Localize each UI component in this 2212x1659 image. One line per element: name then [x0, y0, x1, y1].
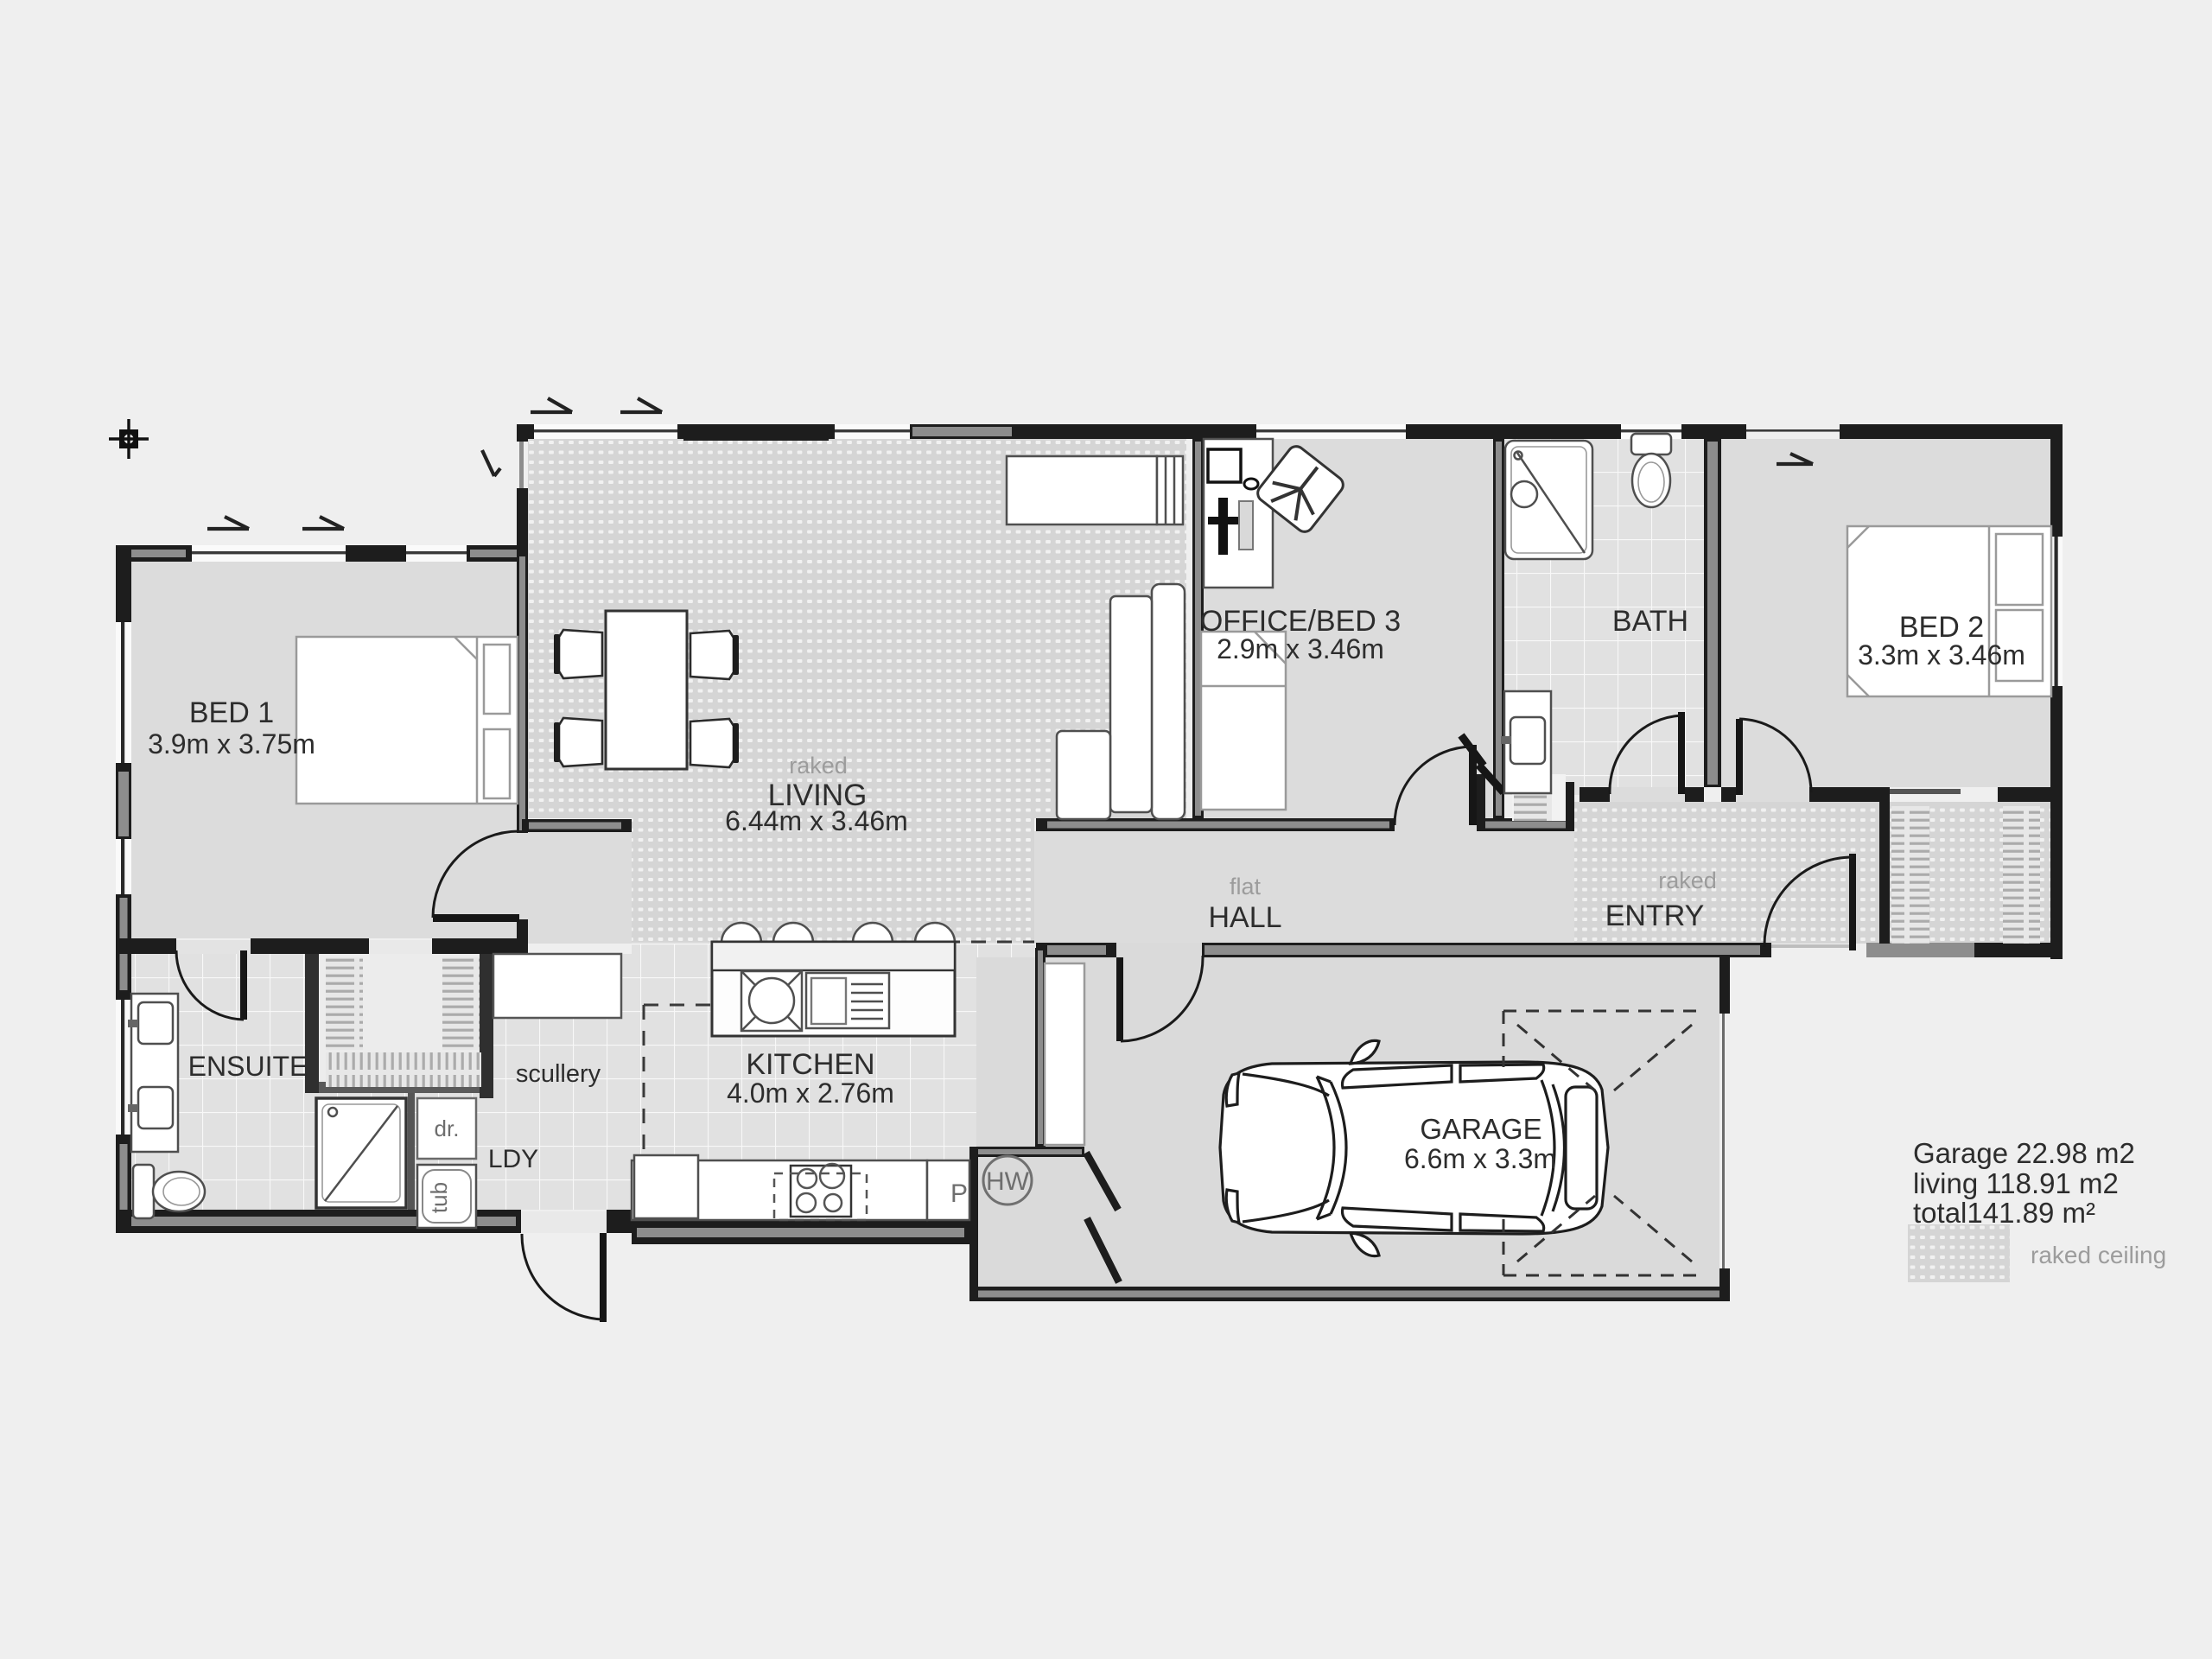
svg-text:Garage 22.98 m2: Garage 22.98 m2 [1913, 1137, 2135, 1169]
svg-text:BATH: BATH [1612, 605, 1688, 638]
svg-text:4.0m x 2.76m: 4.0m x 2.76m [727, 1077, 894, 1109]
svg-text:raked: raked [1658, 868, 1717, 893]
svg-text:KITCHEN: KITCHEN [746, 1048, 874, 1081]
svg-text:6.6m x 3.3m: 6.6m x 3.3m [1404, 1143, 1556, 1174]
svg-text:P: P [950, 1179, 968, 1208]
svg-text:HW: HW [986, 1167, 1030, 1196]
svg-text:raked: raked [789, 753, 848, 779]
svg-text:GARAGE: GARAGE [1420, 1113, 1541, 1145]
svg-text:LDY: LDY [488, 1145, 538, 1173]
svg-text:3.9m x 3.75m: 3.9m x 3.75m [148, 728, 315, 760]
svg-text:living 118.91 m2: living 118.91 m2 [1913, 1167, 2119, 1199]
svg-text:dr.: dr. [435, 1116, 460, 1141]
svg-text:3.3m x 3.46m: 3.3m x 3.46m [1858, 639, 2025, 671]
svg-text:BED 1: BED 1 [189, 696, 274, 729]
svg-text:total141.89 m²: total141.89 m² [1913, 1197, 2095, 1229]
svg-text:6.44m x 3.46m: 6.44m x 3.46m [725, 805, 908, 836]
svg-text:ENTRY: ENTRY [1605, 899, 1705, 932]
svg-text:HALL: HALL [1208, 901, 1281, 934]
svg-text:ENSUITE: ENSUITE [188, 1051, 308, 1082]
svg-text:scullery: scullery [516, 1060, 601, 1088]
svg-text:flat: flat [1230, 874, 1262, 899]
svg-text:raked ceiling: raked ceiling [2031, 1242, 2166, 1268]
svg-text:tub: tub [426, 1182, 452, 1213]
svg-text:2.9m x 3.46m: 2.9m x 3.46m [1217, 633, 1384, 664]
